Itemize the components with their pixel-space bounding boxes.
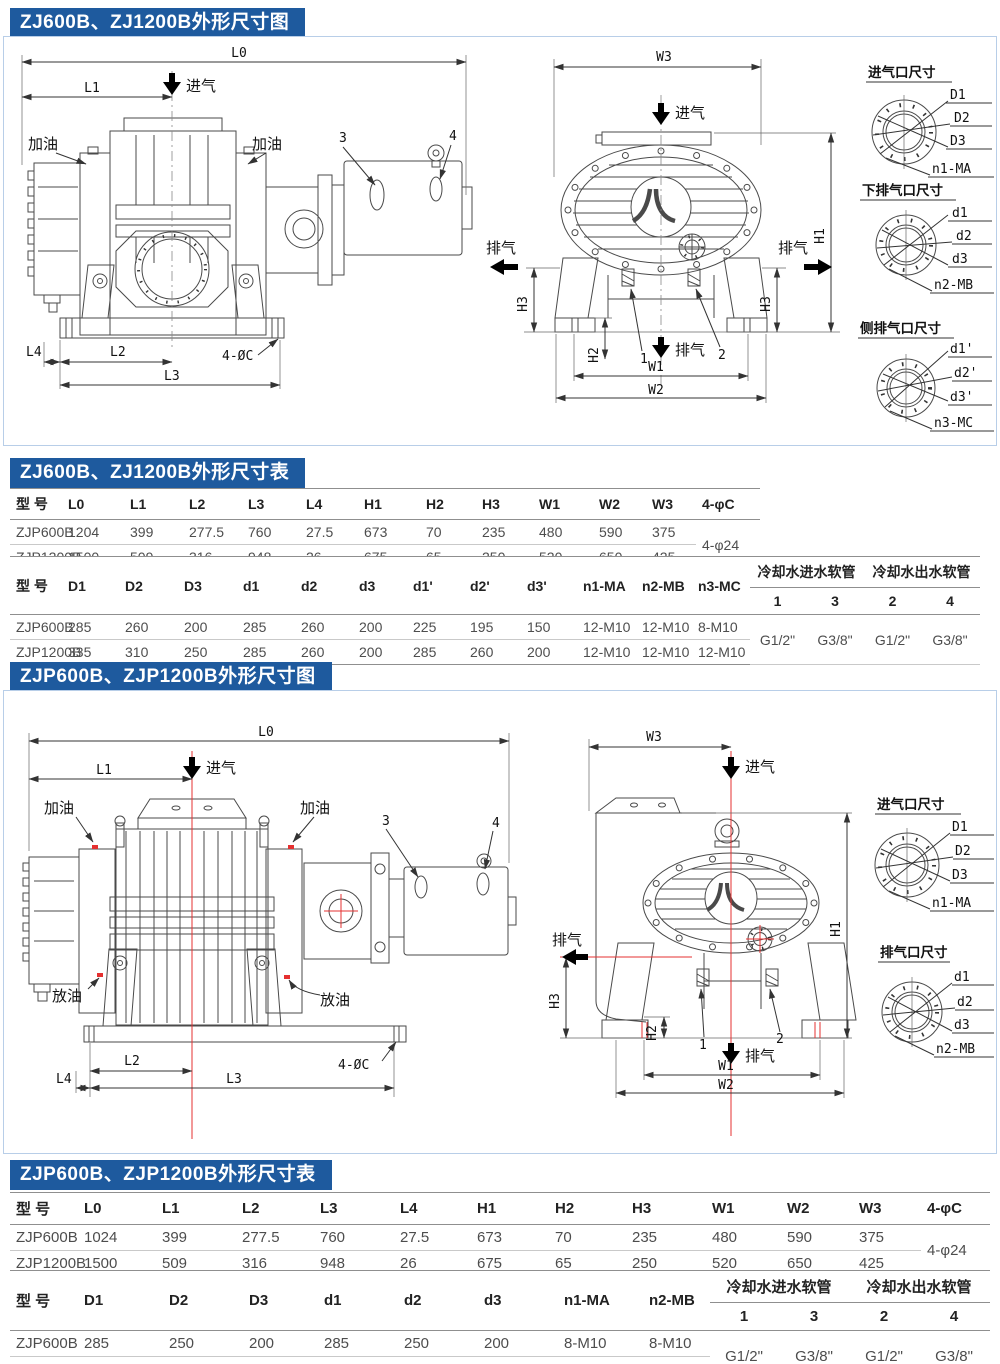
dim-label-l1: L1 [96, 763, 112, 778]
dim-label-bolt-c: 4-ØC [222, 349, 253, 364]
hose-size: G3/8" [922, 615, 980, 665]
section2-title: ZJP600B、ZJP1200B外形尺寸图 [20, 666, 316, 687]
exhaust-arrow-left-icon [490, 259, 504, 275]
dim-label-w1: W1 [718, 1059, 734, 1074]
exhaust-label-bottom: 排气 [745, 1048, 775, 1065]
zj-side-view [28, 118, 472, 338]
callout-4: 4 [449, 129, 457, 144]
cooling-outlet-group-header: 冷却水出水软管 [850, 1271, 990, 1303]
dim-label-l2: L2 [110, 345, 126, 360]
zj-front-view [524, 132, 840, 332]
flange-dim-d1: d1 [952, 206, 968, 221]
dim-label-h3-left: H3 [516, 296, 531, 312]
zj-dim-table-part2: 型 号D1D2D3d1d2d3d1'd2'd3'n1-MAn2-MBn3-MC … [10, 556, 980, 665]
dim-label-l0: L0 [231, 46, 247, 61]
flange-dim-bolts: n1-MA [932, 896, 971, 911]
zjp-dim-table-part1: 型 号L0L1L2L3L4H1H2H3W1W2W34-φC ZJP600B102… [10, 1192, 990, 1277]
callout-1: 1 [640, 352, 648, 367]
dim-label-h1: H1 [813, 228, 828, 244]
hose-size: G1/2" [850, 1331, 920, 1364]
exhaust-label-bottom: 排气 [675, 342, 705, 359]
dim-label-l3: L3 [164, 369, 180, 384]
flange-title: 排气口尺寸 [880, 944, 948, 960]
oil-drain-label-right: 放油 [320, 992, 350, 1009]
flange-dim-d2: D2 [954, 111, 970, 126]
flange-dim-d3p: d3' [950, 390, 973, 405]
oil-fill-label-right: 加油 [252, 136, 282, 153]
dim-label-l2: L2 [124, 1054, 140, 1069]
flange-dim-d2: d2 [956, 229, 972, 244]
callout-2: 2 [776, 1032, 784, 1047]
callout-2: 2 [718, 348, 726, 363]
dim-label-h1: H1 [829, 921, 844, 937]
dim-label-l3: L3 [226, 1072, 242, 1087]
cooling-inlet-group-header: 冷却水进水软管 [710, 1271, 850, 1303]
hose-size: G1/2" [710, 1331, 780, 1364]
flange-title: 下排气口尺寸 [862, 182, 943, 198]
section1-drawing-frame: L0 L1 进气 加油 加油 3 4 L4 L2 L3 4-ØC [3, 36, 997, 446]
flange-dim-d1: d1 [954, 970, 970, 985]
oil-drain-label-left: 放油 [52, 988, 82, 1005]
table-row: ZJP600B1204399277.576027.567370235480590… [10, 520, 760, 545]
hose-size: G1/2" [865, 615, 922, 665]
table-row: ZJP600B2852502002852502008-M108-M10 G1/2… [10, 1331, 990, 1357]
zjp-front-dimensions: W3 进气 排气 H1 H3 H2 1 2 排气 W1 W2 [548, 730, 852, 1136]
zjp-side-dimensions: L0 L1 进气 加油 加油 3 4 放油 放油 L2 L4 L3 4-ØC [29, 725, 509, 1139]
cooling-outlet-group-header: 冷却水出水软管 [865, 557, 980, 588]
zjp-inlet-flange-detail: 进气口尺寸 D1 D2 D3 n1-MA [875, 796, 994, 911]
zj-dimension-drawing: L0 L1 进气 加油 加油 3 4 L4 L2 L3 4-ØC [4, 37, 996, 444]
flange-dim-bolts: n3-MC [934, 416, 973, 431]
oil-fill-label-right: 加油 [300, 800, 330, 817]
dim-label-l0: L0 [258, 725, 274, 740]
dim-label-h3-right: H3 [759, 296, 774, 312]
dim-label-h2: H2 [645, 1025, 660, 1041]
flange-dim-d2: d2 [957, 995, 973, 1010]
datasheet-page: ZJ600B、ZJ1200B外形尺寸图 [0, 0, 1000, 1364]
dim-label-l4: L4 [26, 345, 42, 360]
table1-title: ZJ600B、ZJ1200B外形尺寸表 [20, 462, 289, 483]
flange-dim-d1: D1 [950, 88, 966, 103]
flange-dim-d3: D3 [952, 868, 968, 883]
exhaust-arrow-left-icon [562, 949, 576, 965]
zjp-front-view [560, 798, 856, 1038]
hose-size: G3/8" [920, 1331, 990, 1364]
section2-title-bar: ZJP600B、ZJP1200B外形尺寸图 [10, 662, 332, 692]
hose-size: G1/2" [750, 615, 807, 665]
inlet-label: 进气 [745, 759, 775, 776]
flange-title: 进气口尺寸 [877, 796, 945, 812]
dim-label-h3: H3 [548, 993, 563, 1009]
dim-label-l4: L4 [56, 1072, 72, 1087]
dim-label-w2: W2 [648, 383, 664, 398]
inlet-label: 进气 [675, 105, 705, 122]
dim-label-w2: W2 [718, 1078, 734, 1093]
zjp-dimension-drawing: L0 L1 进气 加油 加油 3 4 放油 放油 L2 L4 L3 4-ØC [4, 691, 996, 1152]
zj-inlet-flange-detail: 进气口尺寸 D1 D2 D3 n1-MA [866, 64, 994, 177]
flange-dim-d1p: d1' [950, 342, 973, 357]
table-row: ZJP600B1024399277.576027.567370235480590… [10, 1225, 990, 1251]
oil-fill-label-left: 加油 [28, 136, 58, 153]
flange-dim-d3: d3 [954, 1018, 970, 1033]
inlet-arrow-icon [163, 82, 181, 95]
zjp-side-view [23, 799, 516, 1042]
flange-dim-d3: d3 [952, 252, 968, 267]
table2-title: ZJP600B、ZJP1200B外形尺寸表 [20, 1164, 316, 1185]
header-row: 型 号L0L1L2L3L4H1H2H3W1W2W34-φC [10, 1193, 990, 1225]
exhaust-label-right: 排气 [778, 240, 808, 257]
inlet-arrow-icon [722, 766, 740, 779]
hose-size: G3/8" [807, 615, 865, 665]
flange-dim-d3: D3 [950, 134, 966, 149]
section2-drawing-frame: L0 L1 进气 加油 加油 3 4 放油 放油 L2 L4 L3 4-ØC [3, 690, 997, 1154]
flange-dim-bolts: n2-MB [936, 1042, 975, 1057]
flange-dim-bolts: n1-MA [932, 162, 971, 177]
section1-title-bar: ZJ600B、ZJ1200B外形尺寸图 [10, 8, 305, 38]
dim-label-h2: H2 [587, 347, 602, 363]
header-row: 型 号D1D2D3d1d2d3n1-MAn2-MB 冷却水进水软管 冷却水出水软… [10, 1271, 990, 1303]
callout-1: 1 [699, 1038, 707, 1053]
section1-title: ZJ600B、ZJ1200B外形尺寸图 [20, 12, 289, 33]
table-row: ZJP600B28526020028526020022519515012-M10… [10, 615, 980, 640]
zj-side-exhaust-flange-detail: 侧排气口尺寸 d1' d2' d3' n3-MC [858, 320, 994, 431]
callout-4: 4 [492, 816, 500, 831]
exhaust-label-left: 排气 [552, 932, 582, 949]
flange-dim-bolts: n2-MB [934, 278, 973, 293]
dim-label-w1: W1 [648, 360, 664, 375]
cooling-inlet-group-header: 冷却水进水软管 [750, 557, 865, 588]
hose-size: G3/8" [780, 1331, 850, 1364]
inlet-label: 进气 [206, 760, 236, 777]
inlet-arrow-icon [183, 766, 201, 779]
flange-dim-d1: D1 [952, 820, 968, 835]
exhaust-arrow-bottom-icon [652, 345, 670, 358]
dim-label-w3: W3 [656, 50, 672, 65]
table2-title-bar: ZJP600B、ZJP1200B外形尺寸表 [10, 1160, 332, 1190]
inlet-arrow-icon [652, 112, 670, 125]
exhaust-arrow-right-icon [818, 259, 832, 275]
zjp-exhaust-flange-detail: 排气口尺寸 d1 d2 d3 n2-MB [878, 944, 994, 1057]
header-row: 型 号L0L1L2L3L4H1H2H3W1W2W34-φC [10, 489, 760, 520]
flange-title: 进气口尺寸 [868, 64, 936, 80]
table1-title-bar: ZJ600B、ZJ1200B外形尺寸表 [10, 458, 305, 488]
callout-3: 3 [382, 814, 390, 829]
flange-dim-d2: D2 [955, 844, 971, 859]
dim-label-l1: L1 [84, 81, 100, 96]
inlet-label: 进气 [186, 78, 216, 95]
dim-label-w3: W3 [646, 730, 662, 745]
dim-label-bolt-c: 4-ØC [338, 1058, 369, 1073]
flange-dim-d2p: d2' [954, 366, 977, 381]
zjp-dim-table-part2: 型 号D1D2D3d1d2d3n1-MAn2-MB 冷却水进水软管 冷却水出水软… [10, 1270, 990, 1364]
callout-3: 3 [339, 131, 347, 146]
exhaust-label-left: 排气 [486, 240, 516, 257]
flange-title: 侧排气口尺寸 [860, 320, 941, 336]
header-row: 型 号D1D2D3d1d2d3d1'd2'd3'n1-MAn2-MBn3-MC … [10, 557, 980, 588]
zj-bottom-exhaust-flange-detail: 下排气口尺寸 d1 d2 d3 n2-MB [860, 182, 994, 293]
merged-bolt-spec: 4-φ24 [921, 1225, 990, 1277]
oil-fill-label-left: 加油 [44, 800, 74, 817]
